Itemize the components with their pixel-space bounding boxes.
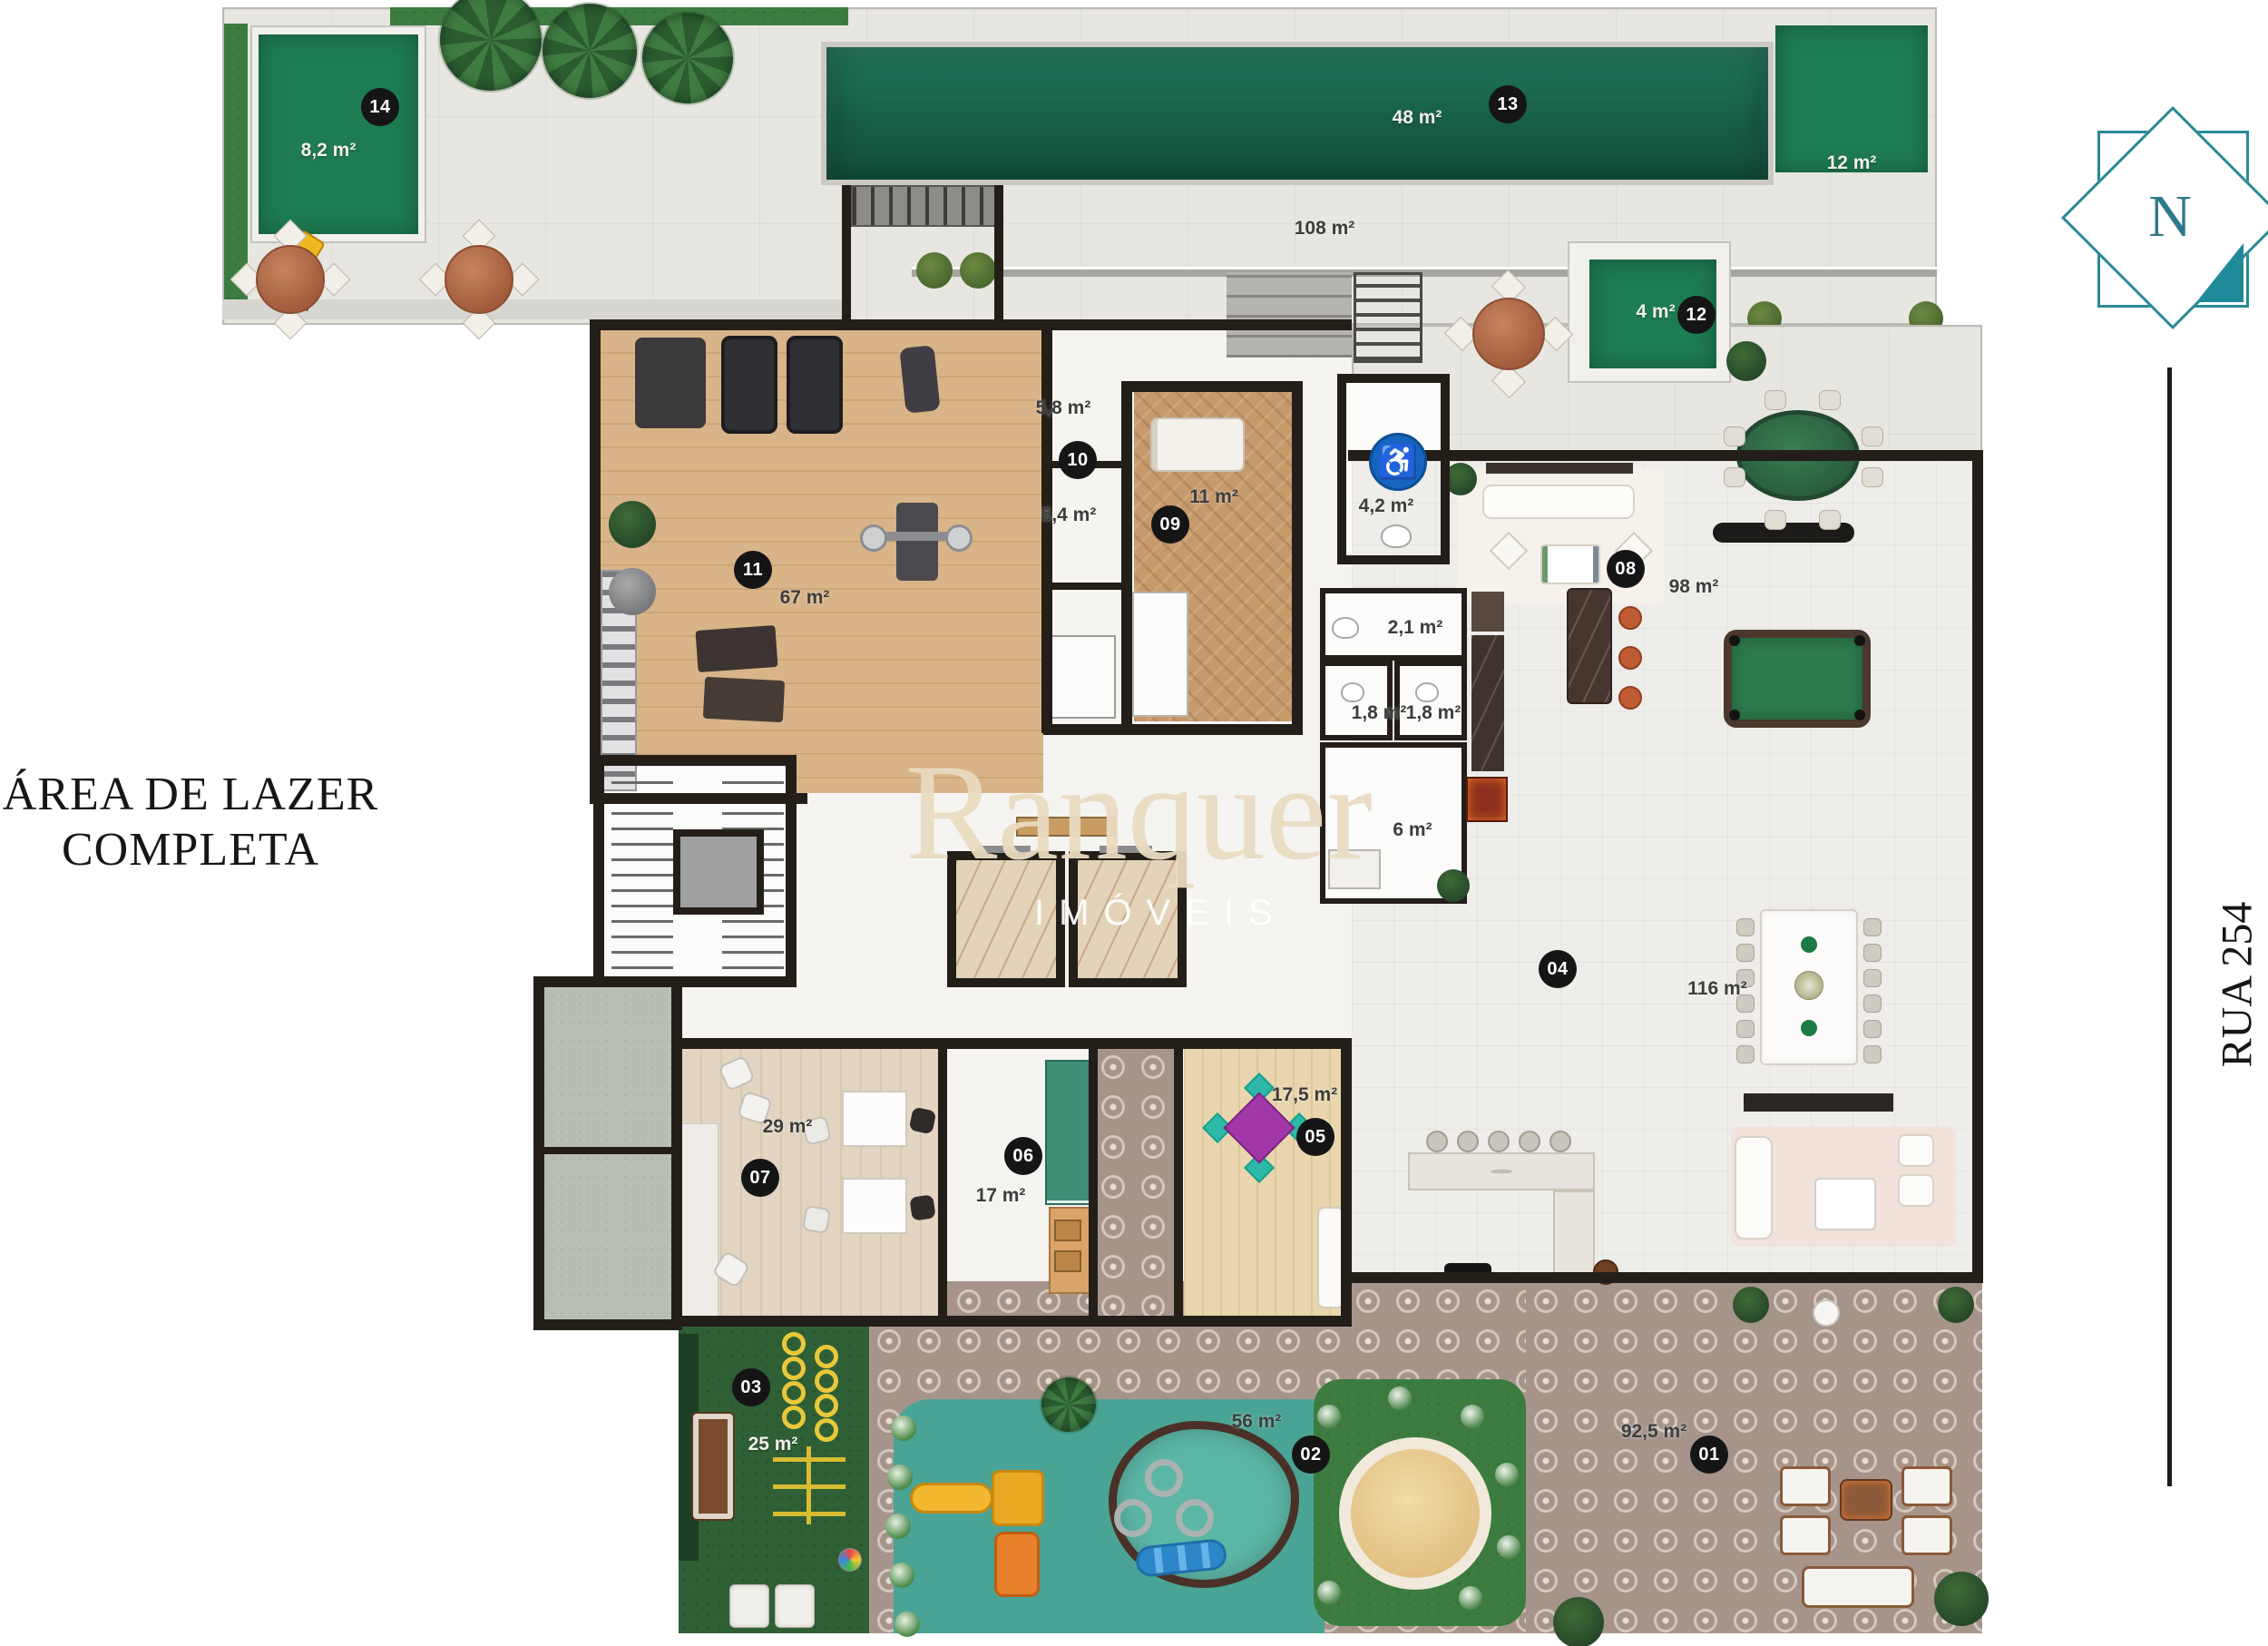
room-badge-08: 08 bbox=[1607, 550, 1645, 588]
card-chair bbox=[1724, 467, 1745, 487]
wall bbox=[590, 793, 807, 804]
play-steps bbox=[994, 1532, 1040, 1597]
banquet-chair bbox=[1736, 944, 1755, 962]
deck-walkway bbox=[912, 267, 1937, 277]
tanning-deck bbox=[1775, 25, 1928, 172]
plate bbox=[1801, 936, 1817, 953]
wall bbox=[1337, 374, 1346, 564]
stool bbox=[1618, 606, 1642, 630]
wall bbox=[1121, 381, 1132, 733]
gym-machine bbox=[635, 338, 706, 428]
room-badge-07: 07 bbox=[741, 1159, 779, 1197]
room-badge-01: 01 bbox=[1690, 1435, 1728, 1474]
banquet-chair bbox=[1736, 1020, 1755, 1038]
area-label: 56 m² bbox=[1232, 1411, 1282, 1433]
wall bbox=[593, 755, 604, 987]
compass-north-letter: N bbox=[2148, 182, 2192, 251]
sofa-2 bbox=[1735, 1136, 1773, 1239]
toilet bbox=[1332, 617, 1359, 639]
kitchen-counter bbox=[1471, 635, 1504, 771]
play-ring bbox=[782, 1357, 806, 1380]
room-badge-12: 12 bbox=[1677, 296, 1716, 334]
page-title: ÁREA DE LAZER COMPLETA bbox=[0, 767, 388, 878]
terrace-ramp bbox=[1227, 272, 1352, 358]
tv-console-2 bbox=[1744, 1093, 1893, 1112]
toilet bbox=[1415, 682, 1439, 702]
bush bbox=[1726, 341, 1766, 381]
card-chair bbox=[1765, 510, 1786, 530]
bar-stool bbox=[1426, 1131, 1448, 1152]
service-corridor bbox=[1093, 1047, 1179, 1319]
area-label: 29 m² bbox=[763, 1116, 813, 1138]
area-label: 17,5 m² bbox=[1272, 1084, 1337, 1106]
banquet-chair bbox=[1863, 994, 1882, 1013]
room-badge-03: 03 bbox=[732, 1368, 770, 1406]
exercise-mat bbox=[703, 677, 785, 723]
tv-console bbox=[1486, 463, 1633, 474]
plant bbox=[1553, 1597, 1604, 1646]
card-chair bbox=[1765, 390, 1786, 410]
play-ring bbox=[815, 1345, 838, 1368]
desk bbox=[842, 1091, 907, 1147]
stool bbox=[1618, 646, 1642, 670]
area-label: 4 m² bbox=[1636, 301, 1675, 323]
floor-plan: ÁREA DE LAZER COMPLETA RUA 254 N Ranquer… bbox=[0, 0, 2268, 1646]
office-chair bbox=[909, 1194, 935, 1220]
room-badge-09: 09 bbox=[1151, 505, 1189, 544]
play-ring bbox=[782, 1381, 806, 1405]
treadmill bbox=[787, 336, 843, 434]
massage-shower bbox=[1132, 592, 1188, 717]
area-label: 98 m² bbox=[1669, 576, 1719, 598]
billiards-table bbox=[1724, 630, 1871, 728]
wall bbox=[533, 976, 682, 987]
palm-tree bbox=[543, 4, 637, 98]
terrace-table bbox=[445, 245, 513, 314]
card-chair bbox=[1862, 426, 1883, 446]
play-ring bbox=[815, 1418, 838, 1442]
area-label: 6 m² bbox=[1393, 819, 1432, 841]
wall bbox=[671, 1316, 1352, 1327]
flower-bush bbox=[1495, 1463, 1519, 1486]
area-label: 67 m² bbox=[780, 587, 830, 609]
patio-armchair bbox=[1901, 1515, 1952, 1555]
stool bbox=[1618, 686, 1642, 710]
flower-bush bbox=[1317, 1405, 1341, 1428]
bar-stool bbox=[1457, 1131, 1479, 1152]
wall bbox=[1043, 583, 1130, 590]
coffee-table bbox=[1540, 544, 1600, 584]
wall bbox=[533, 976, 544, 1330]
pantry-box bbox=[1054, 1220, 1081, 1241]
wall bbox=[994, 185, 1003, 325]
room-badge-06: 06 bbox=[1004, 1137, 1042, 1175]
flower-bush bbox=[887, 1465, 913, 1490]
play-ring bbox=[782, 1406, 806, 1429]
room-badge-05: 05 bbox=[1296, 1118, 1334, 1156]
flower-bush bbox=[1388, 1386, 1412, 1410]
area-label: 1,8 m² bbox=[1406, 702, 1461, 724]
wall bbox=[671, 976, 682, 1330]
bar-counter-leg bbox=[1553, 1190, 1595, 1274]
room-badge-11: 11 bbox=[734, 551, 772, 589]
patio-sofa bbox=[1802, 1566, 1914, 1608]
patio-armchair bbox=[1901, 1466, 1952, 1506]
flower-bush bbox=[1497, 1535, 1520, 1559]
wall bbox=[593, 755, 797, 766]
gym-plant bbox=[609, 501, 656, 548]
play-ring bbox=[815, 1369, 838, 1393]
wall bbox=[1352, 1272, 1982, 1283]
wall bbox=[1972, 450, 1983, 1283]
centerpiece bbox=[1794, 971, 1823, 1000]
wall bbox=[1337, 555, 1450, 564]
play-ring bbox=[782, 1332, 806, 1356]
flower-bush bbox=[894, 1612, 920, 1637]
pocket bbox=[1854, 710, 1865, 720]
wall bbox=[1337, 374, 1450, 383]
lap-pool bbox=[821, 42, 1774, 185]
wall bbox=[786, 755, 797, 987]
gym-bench bbox=[896, 503, 938, 581]
bar-stool bbox=[1519, 1131, 1540, 1152]
flower-bush bbox=[891, 1416, 916, 1441]
flower-bush bbox=[885, 1514, 911, 1539]
plant bbox=[1938, 1287, 1974, 1323]
terrace-table bbox=[1472, 298, 1545, 370]
flower-bush bbox=[1459, 1586, 1482, 1610]
patio-armchair bbox=[1780, 1466, 1831, 1506]
play-slide bbox=[910, 1483, 993, 1514]
side-table bbox=[1813, 1299, 1840, 1327]
patio-armchair bbox=[1780, 1515, 1831, 1555]
area-label: 116 m² bbox=[1687, 978, 1746, 1000]
pool-ring bbox=[1176, 1499, 1214, 1537]
page-title-line1: ÁREA DE LAZER bbox=[0, 767, 388, 822]
deck-path bbox=[222, 299, 848, 319]
wall bbox=[1441, 374, 1450, 564]
bar-stool bbox=[1488, 1131, 1510, 1152]
wall bbox=[1121, 381, 1303, 392]
palm-tree bbox=[642, 13, 733, 103]
desk bbox=[842, 1178, 907, 1234]
card-chair bbox=[1819, 390, 1841, 410]
card-chair bbox=[1862, 467, 1883, 487]
room-badge-10: 10 bbox=[1059, 441, 1097, 479]
palm-tree bbox=[1041, 1377, 1096, 1432]
plant bbox=[1733, 1287, 1769, 1323]
play-ring bbox=[815, 1394, 838, 1417]
area-label: 5,4 m² bbox=[1041, 505, 1097, 526]
barbell-plate bbox=[945, 524, 973, 552]
area-label: 2,1 m² bbox=[1388, 617, 1443, 639]
exercise-bike bbox=[899, 345, 940, 414]
area-label: 8,2 m² bbox=[301, 140, 357, 162]
area-label: 1,8 m² bbox=[1352, 702, 1407, 724]
banquet-chair bbox=[1863, 944, 1882, 962]
pool-ring bbox=[1145, 1459, 1183, 1497]
garden-bench bbox=[691, 1412, 735, 1521]
coffee-table-2 bbox=[1814, 1178, 1876, 1230]
banquet-chair bbox=[1863, 1020, 1882, 1038]
beach-ball bbox=[838, 1548, 862, 1572]
accessible-icon: ♿ bbox=[1369, 433, 1427, 491]
wall bbox=[1041, 319, 1052, 733]
wall bbox=[590, 319, 601, 804]
area-label: 92,5 m² bbox=[1621, 1421, 1686, 1443]
area-label: 5,8 m² bbox=[1036, 397, 1091, 419]
treadmill bbox=[721, 336, 777, 434]
area-label: 48 m² bbox=[1393, 107, 1442, 129]
terrace-stair-rail bbox=[1354, 272, 1422, 363]
wall bbox=[533, 1319, 682, 1330]
room-badge-13: 13 bbox=[1489, 85, 1527, 123]
room-badge-02: 02 bbox=[1292, 1435, 1330, 1474]
flower-bush bbox=[1317, 1581, 1341, 1604]
room-badge-14: 14 bbox=[361, 88, 399, 126]
armchair bbox=[1898, 1134, 1934, 1167]
wall bbox=[1292, 381, 1303, 733]
barbell-plate bbox=[860, 524, 887, 552]
banquet-chair bbox=[1863, 969, 1882, 987]
pantry-cabinet bbox=[1045, 1060, 1090, 1205]
wall bbox=[1052, 319, 1352, 330]
pocket bbox=[1729, 635, 1740, 646]
card-chair bbox=[1819, 510, 1841, 530]
kitchen-cabinet bbox=[1471, 592, 1504, 632]
bar-stool bbox=[1549, 1131, 1571, 1152]
wall bbox=[1341, 1038, 1352, 1327]
wall bbox=[539, 1147, 675, 1154]
picnic-mat bbox=[729, 1584, 769, 1628]
high-table bbox=[1567, 588, 1612, 704]
toilet bbox=[1341, 682, 1364, 702]
area-label: 25 m² bbox=[748, 1434, 798, 1455]
fire-pit-table bbox=[1840, 1479, 1892, 1521]
wall bbox=[590, 319, 1052, 330]
play-ladder-rail bbox=[807, 1446, 811, 1524]
picnic-mat bbox=[775, 1584, 815, 1628]
spa-pool bbox=[259, 34, 418, 234]
plant bbox=[1934, 1572, 1989, 1626]
stair-core bbox=[673, 829, 764, 915]
massage-table bbox=[1150, 417, 1245, 472]
sofa bbox=[1482, 485, 1635, 519]
shower-stall bbox=[1051, 635, 1116, 719]
sandbox bbox=[1339, 1437, 1491, 1590]
page-title-line2: COMPLETA bbox=[0, 822, 388, 877]
deck-stairs bbox=[851, 185, 1003, 227]
bush bbox=[960, 252, 996, 289]
play-tower bbox=[992, 1470, 1044, 1526]
street-label: RUA 254 bbox=[2213, 902, 2263, 1068]
banquet-chair bbox=[1736, 918, 1755, 936]
card-chair bbox=[1724, 426, 1745, 446]
desk-chair bbox=[802, 1205, 831, 1234]
banquet-chair bbox=[1863, 918, 1882, 936]
plant bbox=[1437, 869, 1470, 902]
flower-bush bbox=[889, 1563, 914, 1588]
flower-bush bbox=[1461, 1405, 1484, 1428]
toilet bbox=[1381, 524, 1412, 548]
wall bbox=[1174, 1043, 1183, 1316]
wall bbox=[671, 1038, 1352, 1049]
street-boundary-line bbox=[2167, 367, 2172, 1486]
bbq-grill bbox=[1466, 777, 1508, 822]
room-badge-04: 04 bbox=[1539, 950, 1577, 988]
pocket bbox=[1854, 635, 1865, 646]
pocket bbox=[1729, 710, 1740, 720]
coworking-counter bbox=[680, 1123, 719, 1319]
area-label: 108 m² bbox=[1295, 218, 1355, 240]
area-label: 4,2 m² bbox=[1359, 495, 1414, 517]
area-label: 17 m² bbox=[976, 1185, 1026, 1207]
area-label: 11 m² bbox=[1189, 486, 1238, 508]
wall bbox=[938, 1043, 947, 1316]
pantry-box bbox=[1054, 1250, 1081, 1272]
exercise-mat bbox=[696, 625, 778, 672]
pool-ring bbox=[1114, 1499, 1152, 1537]
watermark-brand: Ranquer bbox=[905, 733, 1373, 891]
armchair bbox=[1898, 1174, 1934, 1207]
gym-weight-plate bbox=[609, 568, 656, 615]
watermark-subtitle: IMÓVEIS bbox=[1034, 893, 1287, 934]
banquet-chair bbox=[1863, 1045, 1882, 1063]
plate bbox=[1801, 1020, 1817, 1036]
terrace-table bbox=[256, 245, 325, 314]
area-label: 12 m² bbox=[1827, 152, 1877, 174]
banquet-chair bbox=[1736, 1045, 1755, 1063]
wall bbox=[842, 185, 851, 325]
bush bbox=[916, 252, 953, 289]
wall bbox=[1089, 1043, 1098, 1316]
bar-counter bbox=[1408, 1152, 1595, 1190]
